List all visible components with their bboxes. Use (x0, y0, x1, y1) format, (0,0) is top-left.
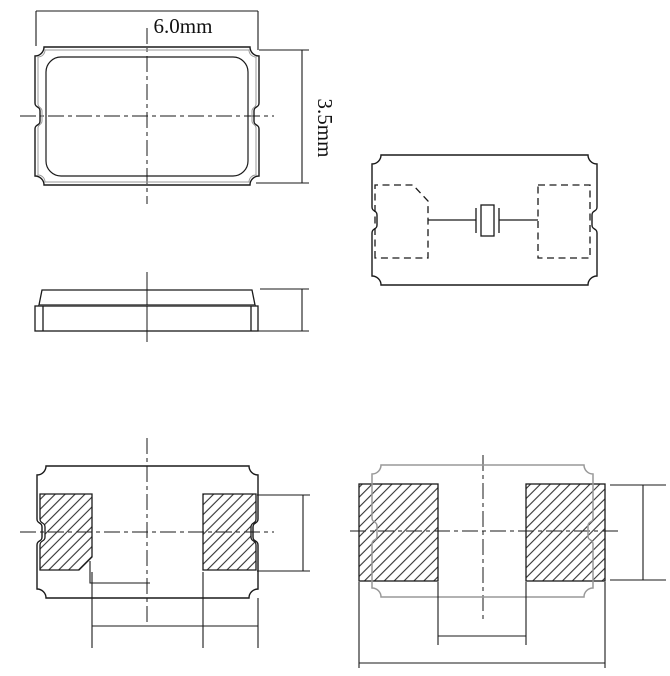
crystal-body (481, 205, 494, 236)
side-view (35, 272, 309, 342)
bottom-view (20, 438, 310, 648)
internal-view (372, 155, 597, 285)
land-pad-left-hatched (359, 484, 438, 581)
width-dimension-label: 6.0mm (154, 14, 213, 38)
bottom-pad-left-hatched (40, 494, 92, 570)
crystal-package-drawing: 6.0mm 3.5mm (0, 0, 670, 676)
bottom-pad-right-hatched (203, 494, 256, 570)
pin1-chamfer-leader (90, 561, 150, 583)
internal-pad-right-dashed (538, 185, 590, 258)
top-view: 6.0mm 3.5mm (20, 11, 337, 204)
technical-drawing-sheet: 6.0mm 3.5mm (0, 0, 670, 676)
internal-view-package-outline (372, 155, 597, 285)
land-pattern-view (350, 455, 666, 668)
internal-pad-left-dashed (375, 185, 428, 258)
height-dimension-label: 3.5mm (313, 99, 337, 158)
